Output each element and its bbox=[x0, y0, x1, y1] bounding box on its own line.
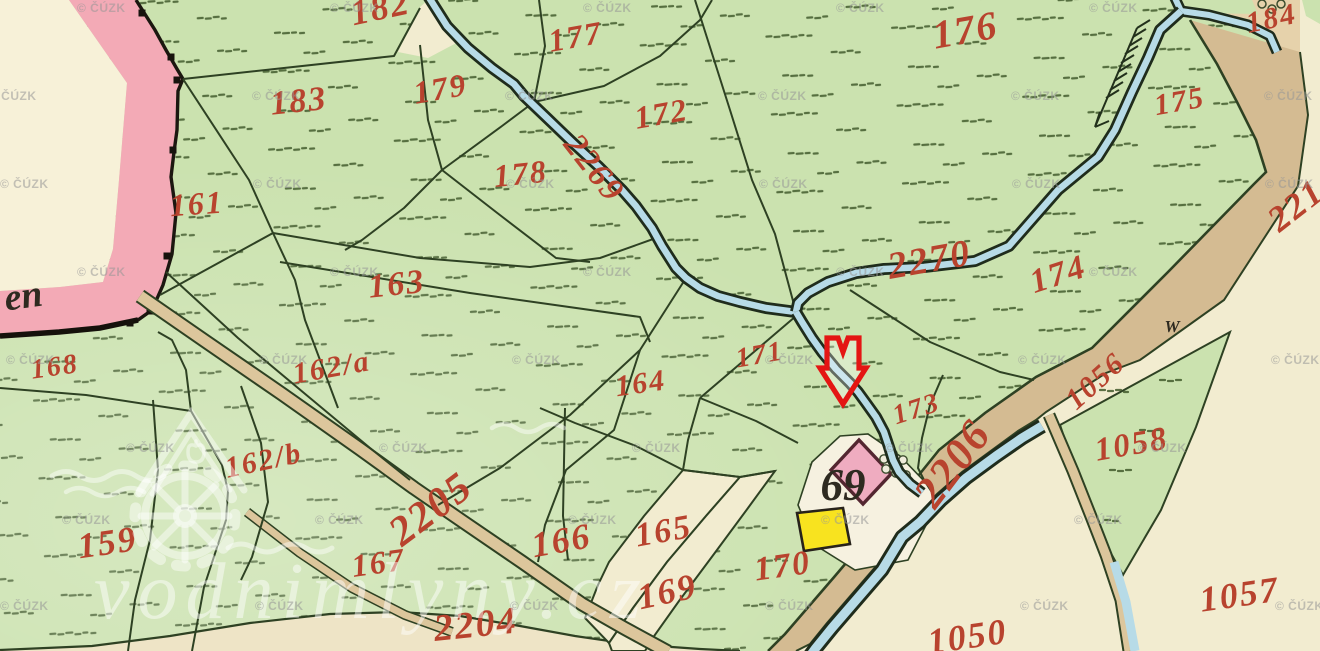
svg-text:© ČÚZK: © ČÚZK bbox=[259, 352, 308, 367]
svg-text:© ČÚZK: © ČÚZK bbox=[126, 440, 175, 455]
svg-text:© ČÚZK: © ČÚZK bbox=[506, 176, 555, 191]
svg-text:© ČÚZK: © ČÚZK bbox=[765, 598, 814, 613]
svg-text:© ČÚZK: © ČÚZK bbox=[821, 512, 870, 527]
svg-text:© ČÚZK: © ČÚZK bbox=[62, 512, 111, 527]
svg-text:170: 170 bbox=[752, 544, 814, 589]
svg-text:© ČÚZK: © ČÚZK bbox=[1264, 88, 1313, 103]
svg-text:© ČÚZK: © ČÚZK bbox=[1138, 440, 1187, 455]
svg-text:© ČÚZK: © ČÚZK bbox=[583, 0, 632, 15]
svg-text:© ČÚZK: © ČÚZK bbox=[568, 512, 617, 527]
svg-text:W: W bbox=[1164, 317, 1181, 336]
svg-text:© ČÚZK: © ČÚZK bbox=[1089, 0, 1138, 15]
svg-text:© ČÚZK: © ČÚZK bbox=[1271, 352, 1320, 367]
svg-text:© ČÚZK: © ČÚZK bbox=[885, 440, 934, 455]
svg-text:© ČÚZK: © ČÚZK bbox=[1074, 512, 1123, 527]
svg-text:© ČÚZK: © ČÚZK bbox=[1020, 598, 1069, 613]
svg-text:© ČÚZK: © ČÚZK bbox=[632, 440, 681, 455]
svg-text:© ČÚZK: © ČÚZK bbox=[765, 352, 814, 367]
svg-text:© ČÚZK: © ČÚZK bbox=[330, 0, 379, 15]
svg-text:164: 164 bbox=[613, 364, 668, 404]
svg-text:© ČÚZK: © ČÚZK bbox=[1275, 598, 1320, 613]
svg-text:© ČÚZK: © ČÚZK bbox=[1018, 352, 1067, 367]
svg-text:© ČÚZK: © ČÚZK bbox=[510, 598, 559, 613]
svg-text:69: 69 bbox=[821, 460, 866, 510]
svg-text:© ČÚZK: © ČÚZK bbox=[379, 440, 428, 455]
svg-text:© ČÚZK: © ČÚZK bbox=[1012, 176, 1061, 191]
svg-text:© ČÚZK: © ČÚZK bbox=[758, 88, 807, 103]
svg-text:© ČÚZK: © ČÚZK bbox=[1089, 264, 1138, 279]
svg-text:© ČÚZK: © ČÚZK bbox=[252, 88, 301, 103]
svg-text:© ČÚZK: © ČÚZK bbox=[255, 598, 304, 613]
svg-text:© ČÚZK: © ČÚZK bbox=[512, 352, 561, 367]
svg-text:© ČÚZK: © ČÚZK bbox=[836, 264, 885, 279]
svg-text:© ČÚZK: © ČÚZK bbox=[6, 352, 55, 367]
svg-text:en: en bbox=[2, 273, 45, 320]
svg-text:© ČÚZK: © ČÚZK bbox=[77, 264, 126, 279]
svg-text:© ČÚZK: © ČÚZK bbox=[1265, 176, 1314, 191]
svg-text:© ČÚZK: © ČÚZK bbox=[0, 88, 37, 103]
svg-text:© ČÚZK: © ČÚZK bbox=[759, 176, 808, 191]
svg-text:© ČÚZK: © ČÚZK bbox=[315, 512, 364, 527]
svg-text:© ČÚZK: © ČÚZK bbox=[1011, 88, 1060, 103]
svg-text:© ČÚZK: © ČÚZK bbox=[583, 264, 632, 279]
svg-text:© ČÚZK: © ČÚZK bbox=[836, 0, 885, 15]
svg-text:© ČÚZK: © ČÚZK bbox=[77, 0, 126, 15]
svg-text:161: 161 bbox=[169, 184, 225, 224]
svg-text:© ČÚZK: © ČÚZK bbox=[330, 264, 379, 279]
svg-text:© ČÚZK: © ČÚZK bbox=[0, 176, 49, 191]
svg-text:vodnimlyny.cz: vodnimlyny.cz bbox=[94, 548, 649, 636]
svg-text:© ČÚZK: © ČÚZK bbox=[505, 88, 554, 103]
svg-text:© ČÚZK: © ČÚZK bbox=[253, 176, 302, 191]
svg-text:© ČÚZK: © ČÚZK bbox=[0, 598, 49, 613]
